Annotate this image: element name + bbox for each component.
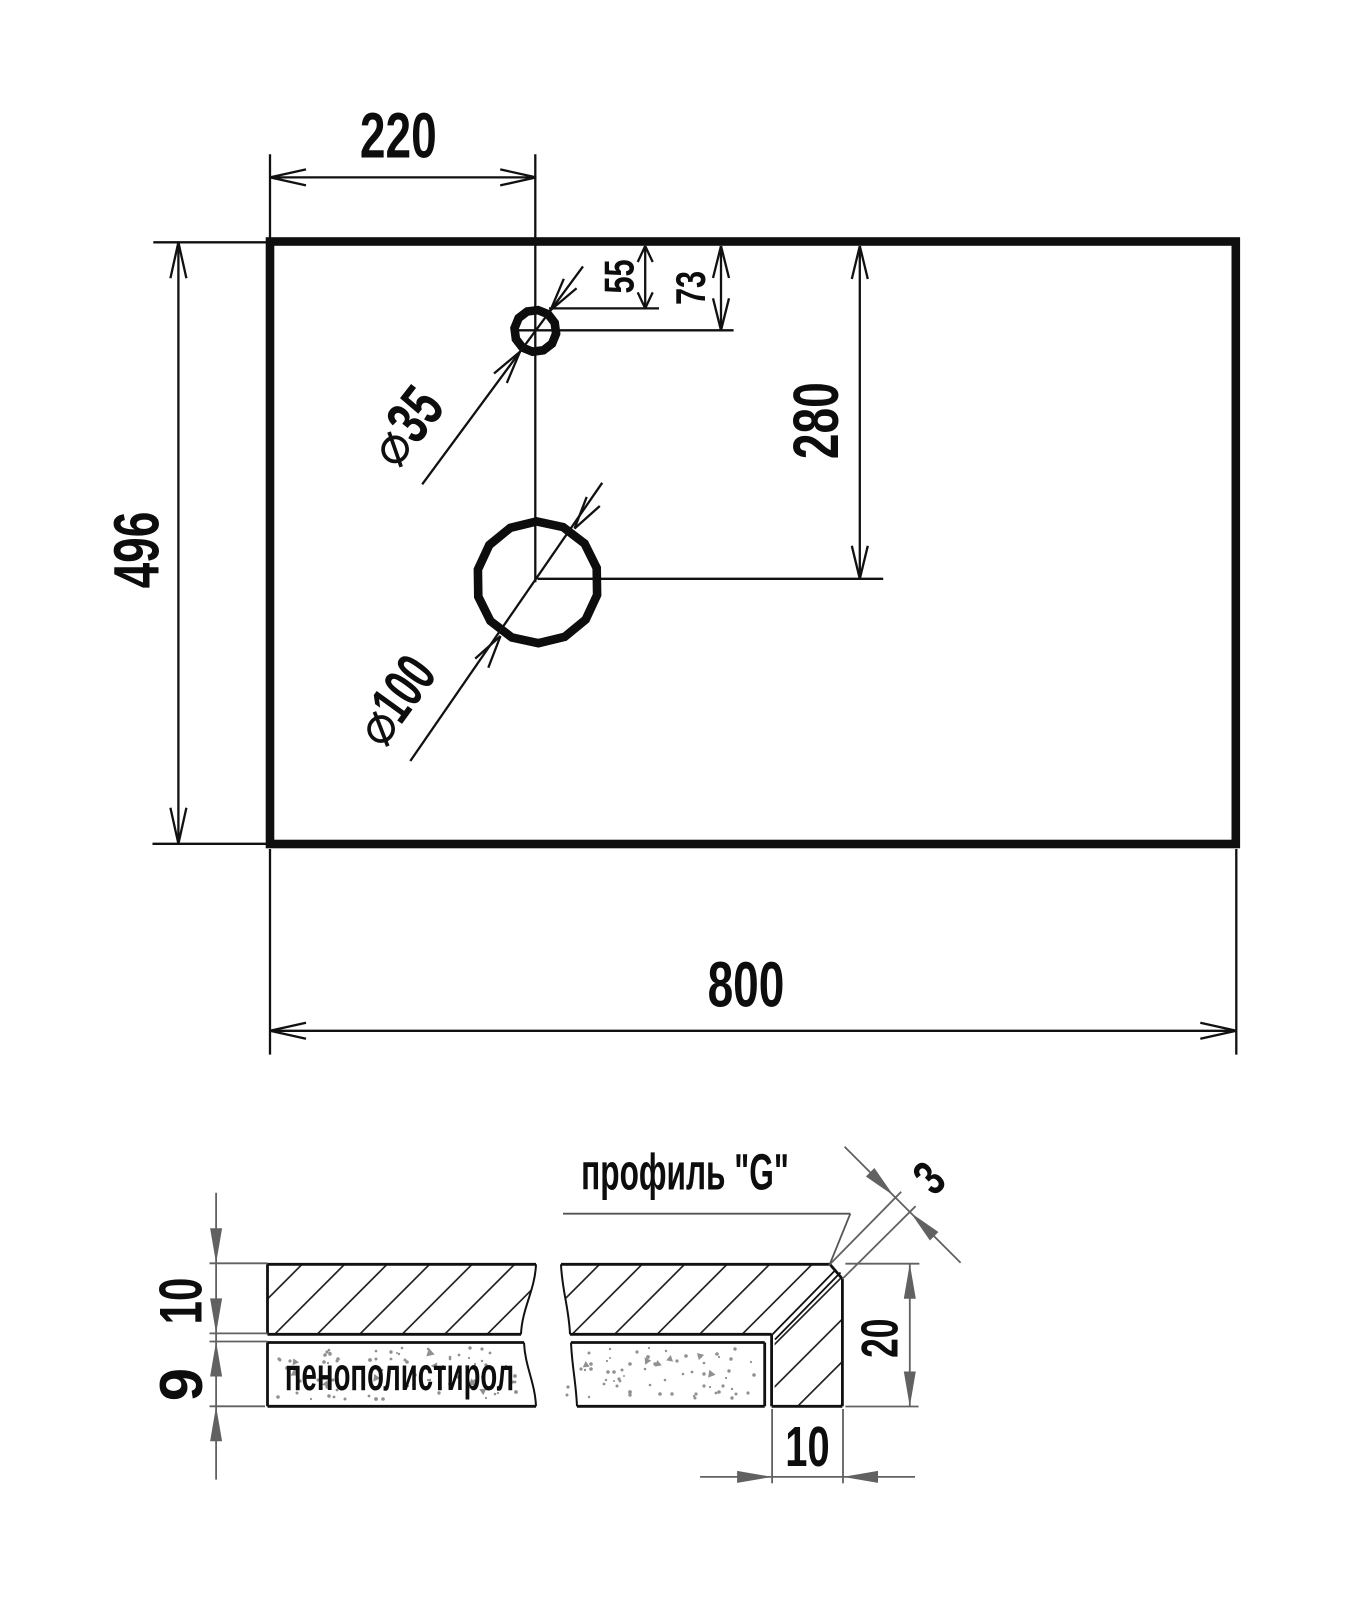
svg-text:496: 496 bbox=[101, 512, 172, 589]
svg-text:10: 10 bbox=[147, 1278, 214, 1325]
svg-text:20: 20 bbox=[852, 1319, 909, 1358]
svg-text:профиль "G": профиль "G" bbox=[581, 1144, 789, 1200]
svg-text:10: 10 bbox=[785, 1415, 829, 1479]
svg-text:220: 220 bbox=[360, 100, 437, 171]
svg-text:55: 55 bbox=[596, 259, 643, 293]
svg-text:9: 9 bbox=[148, 1368, 215, 1401]
svg-text:280: 280 bbox=[781, 382, 852, 459]
svg-text:800: 800 bbox=[708, 949, 785, 1020]
svg-text:73: 73 bbox=[668, 271, 715, 305]
svg-text:пенополистирол: пенополистирол bbox=[285, 1350, 514, 1401]
